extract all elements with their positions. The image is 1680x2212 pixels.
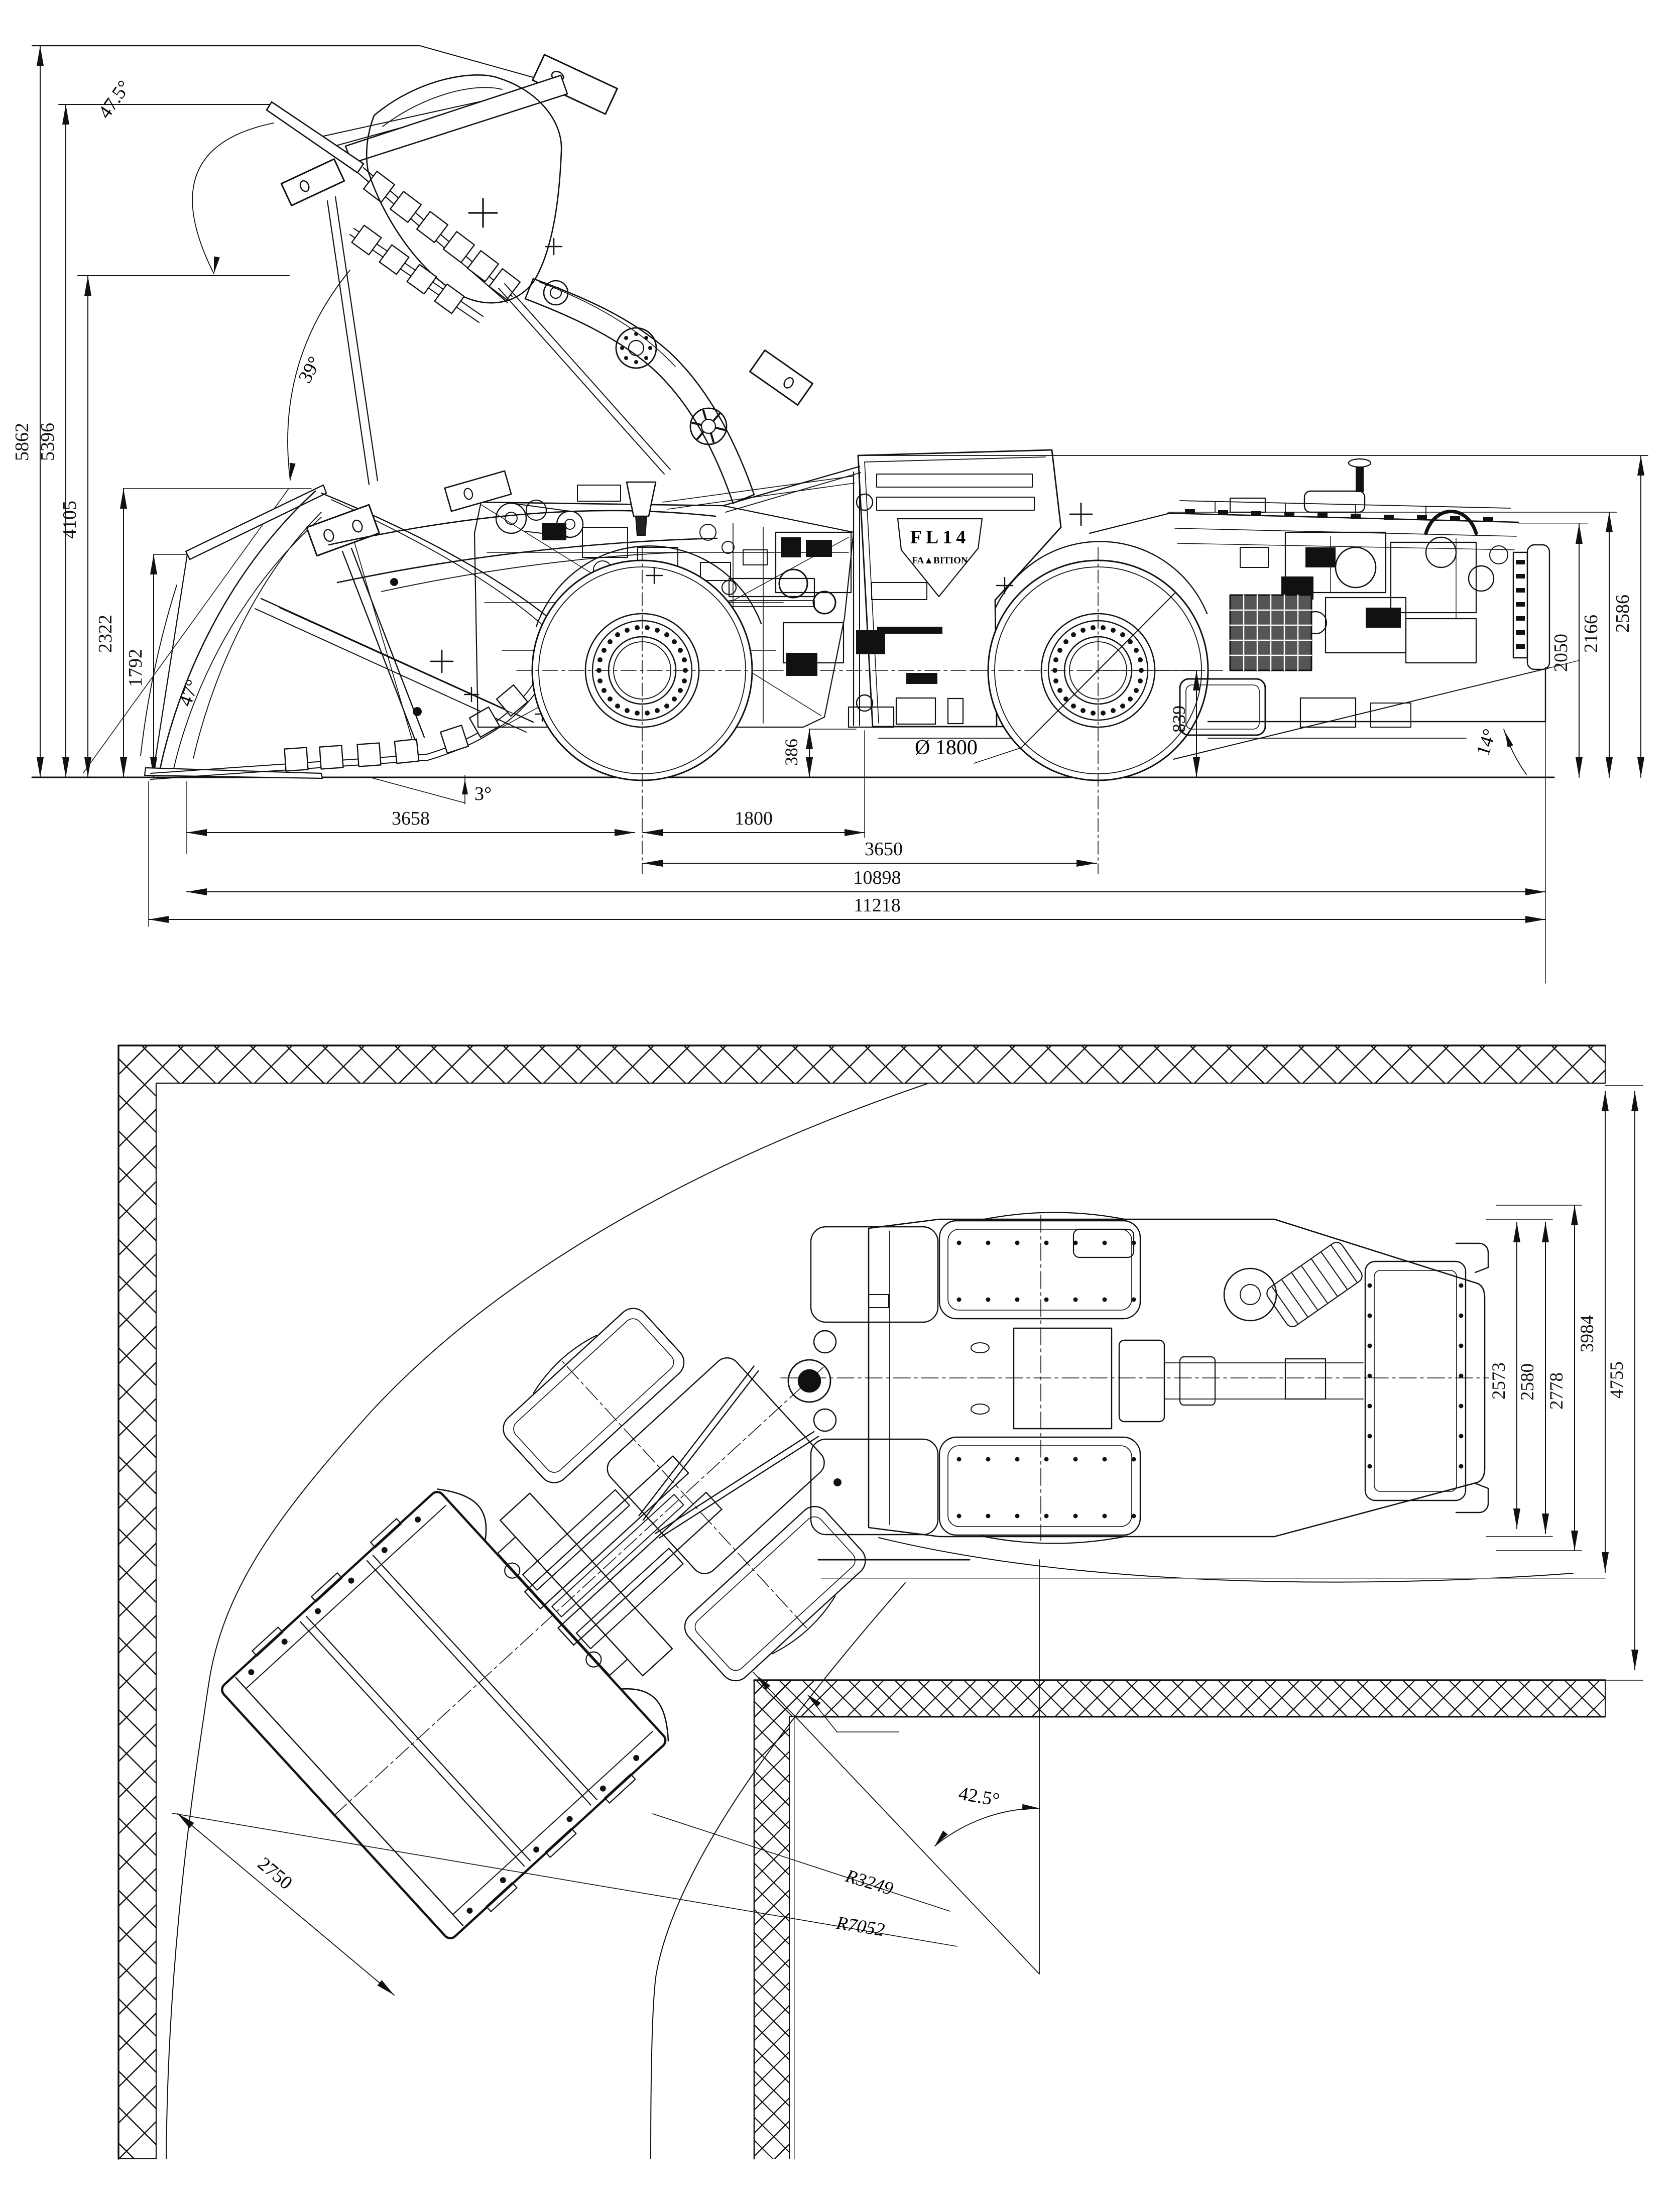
svg-text:FL14: FL14 xyxy=(910,527,970,548)
svg-text:2573: 2573 xyxy=(1489,1362,1509,1400)
svg-text:11218: 11218 xyxy=(854,895,901,916)
svg-text:5396: 5396 xyxy=(37,423,58,461)
svg-text:10898: 10898 xyxy=(854,867,901,888)
svg-text:4755: 4755 xyxy=(1607,1361,1627,1399)
svg-text:5862: 5862 xyxy=(12,423,33,461)
svg-text:2586: 2586 xyxy=(1612,595,1633,633)
svg-text:3658: 3658 xyxy=(392,808,430,829)
svg-text:3984: 3984 xyxy=(1577,1315,1598,1352)
svg-text:2580: 2580 xyxy=(1517,1363,1538,1401)
svg-text:386: 386 xyxy=(781,739,801,766)
svg-text:3650: 3650 xyxy=(865,839,903,860)
svg-text:FA▲BITION: FA▲BITION xyxy=(912,555,968,566)
svg-text:1792: 1792 xyxy=(125,649,146,687)
svg-text:4105: 4105 xyxy=(59,501,80,539)
svg-text:1800: 1800 xyxy=(735,808,773,829)
svg-text:2778: 2778 xyxy=(1546,1372,1567,1410)
svg-text:2050: 2050 xyxy=(1550,634,1572,672)
svg-text:2322: 2322 xyxy=(95,615,116,653)
svg-text:3°: 3° xyxy=(474,783,492,804)
svg-text:Ø 1800: Ø 1800 xyxy=(915,736,978,759)
svg-text:2166: 2166 xyxy=(1581,615,1602,653)
